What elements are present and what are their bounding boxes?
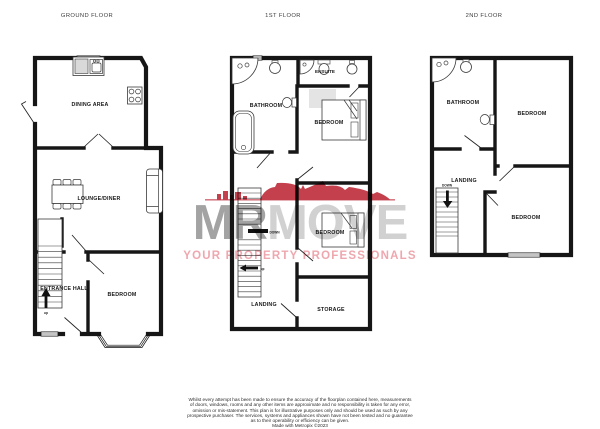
stairs-up-label: up (261, 267, 265, 271)
stairs-up-label: up (44, 311, 48, 315)
kitchen-sink-unit-icon (73, 57, 104, 76)
basin-icon (270, 61, 281, 74)
floorplan-page: GROUND FLOOR 1ST FLOOR 2ND FLOOR (0, 0, 600, 429)
room-label-bedroom-top: BEDROOM (314, 120, 343, 126)
bay-window (97, 334, 150, 348)
room-label-bathroom: BATHROOM (447, 100, 480, 106)
staircase-icon: DOWN up (238, 188, 280, 297)
first-floor-plan: DOWN up (232, 56, 370, 329)
ensuite-basin-icon (347, 61, 357, 75)
room-label-landing: LANDING (451, 178, 477, 184)
room-label-bedroom-bottom: BEDROOM (511, 215, 540, 221)
room-label-bedroom: BEDROOM (107, 292, 136, 298)
corner-shower-icon (432, 58, 456, 82)
second-windows (508, 253, 540, 257)
toilet-icon (480, 115, 494, 125)
floorplan-drawing: up (0, 0, 600, 429)
room-label-ensuite: ENSUITE (315, 69, 335, 74)
room-label-storage: STORAGE (317, 307, 345, 313)
second-floor-plan: DOWN BATHROOM BEDROOM LANDING BEDROOM (432, 58, 571, 257)
room-label-lounge: LOUNGE/DINER (77, 196, 120, 202)
ensuite-shower-icon (300, 60, 314, 74)
room-label-hall: ENTRANCE HALL (40, 286, 88, 292)
ground-floor-plan: up (22, 56, 163, 348)
sofa-icon (147, 169, 163, 213)
stairs-down-label: DOWN (270, 231, 281, 235)
room-label-dining: DINING AREA (71, 102, 108, 108)
room-label-bathroom: BATHROOM (250, 103, 283, 109)
disclaimer-text: Whilst every attempt has been made to en… (145, 397, 455, 429)
room-label-bedroom-top: BEDROOM (517, 111, 546, 117)
basin-icon (461, 60, 472, 73)
bathtub-icon (233, 111, 254, 154)
room-label-landing: LANDING (251, 302, 277, 308)
staircase-icon: DOWN (436, 184, 458, 254)
toilet-icon (282, 98, 296, 108)
second-doors (465, 136, 515, 206)
room-label-bedroom-mid: BEDROOM (315, 230, 344, 236)
dining-table-icon (52, 180, 83, 210)
down-marker (248, 229, 268, 233)
disclaimer-line: of doors, windows, rooms and any other i… (145, 402, 455, 407)
staircase-icon: up (38, 219, 62, 315)
stairs-down-label: DOWN (442, 184, 453, 188)
hob-icon (128, 87, 143, 104)
disclaimer-credit: Made with Metropix ©2023 (145, 423, 455, 428)
corner-shower-icon (232, 58, 258, 84)
